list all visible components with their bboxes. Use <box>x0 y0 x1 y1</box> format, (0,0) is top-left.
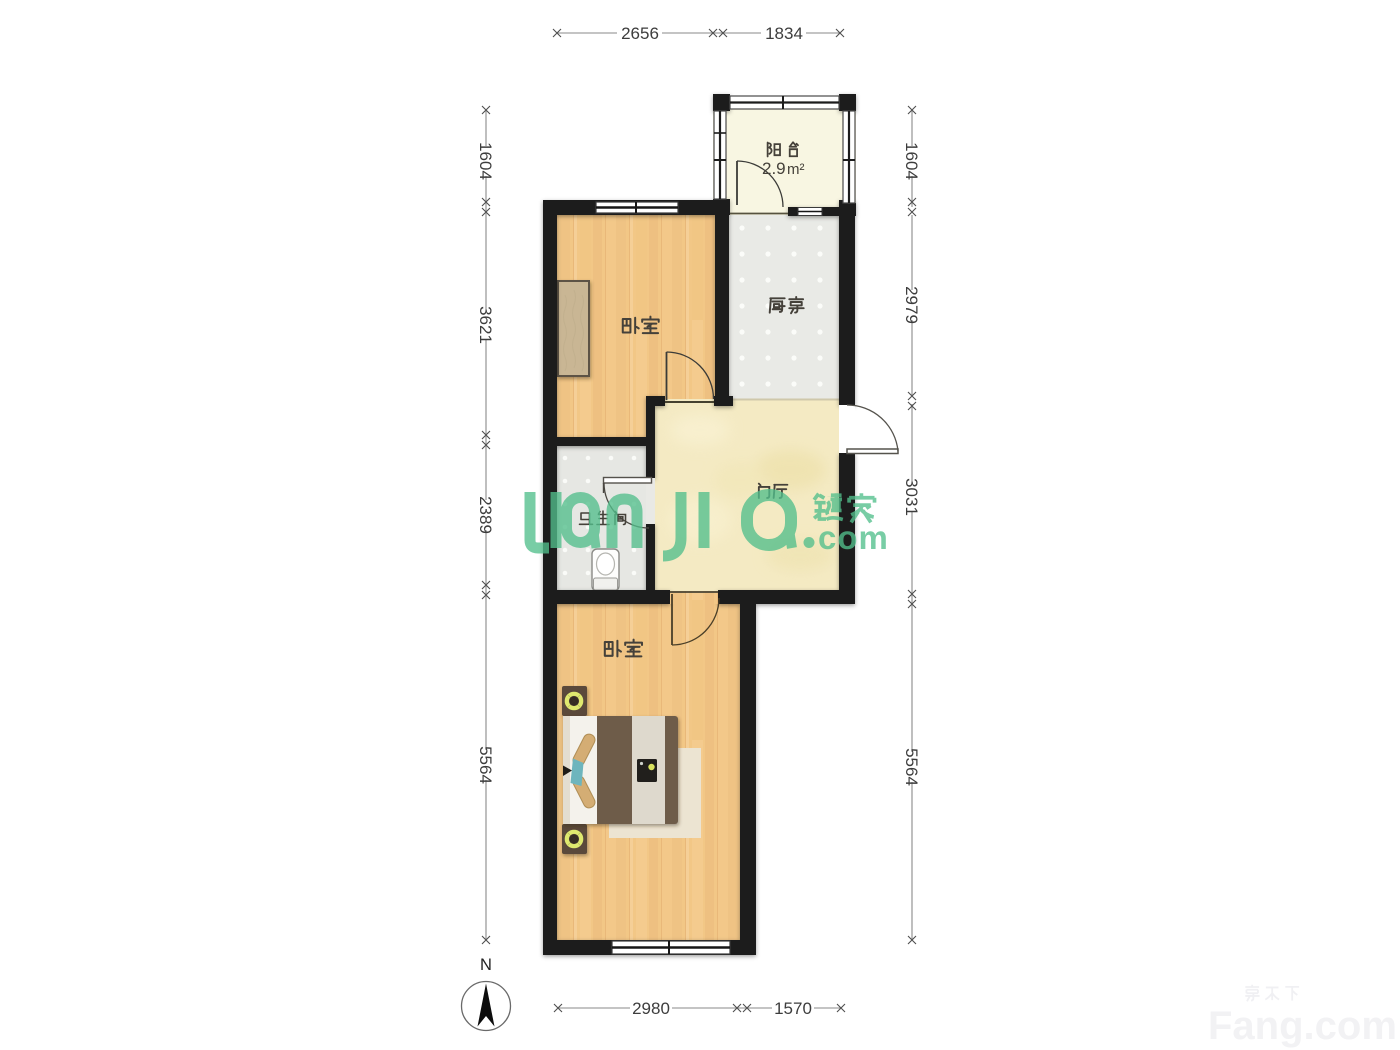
svg-text:m²: m² <box>787 161 805 178</box>
svg-text:1570: 1570 <box>774 999 812 1018</box>
svg-text:5564: 5564 <box>476 746 495 784</box>
svg-text:1604: 1604 <box>902 142 921 180</box>
svg-text:1604: 1604 <box>476 142 495 180</box>
svg-text:2979: 2979 <box>902 286 921 324</box>
svg-text:1834: 1834 <box>765 24 803 43</box>
svg-text:com: com <box>818 519 889 556</box>
svg-text:2980: 2980 <box>632 999 670 1018</box>
svg-text:N: N <box>480 956 492 974</box>
svg-text:Fang.com: Fang.com <box>1208 1004 1397 1048</box>
svg-text:2656: 2656 <box>621 24 659 43</box>
svg-text:5564: 5564 <box>902 748 921 786</box>
svg-text:2389: 2389 <box>476 496 495 534</box>
svg-text:2.9: 2.9 <box>762 159 786 178</box>
svg-text:3621: 3621 <box>476 306 495 344</box>
svg-text:3031: 3031 <box>902 478 921 516</box>
